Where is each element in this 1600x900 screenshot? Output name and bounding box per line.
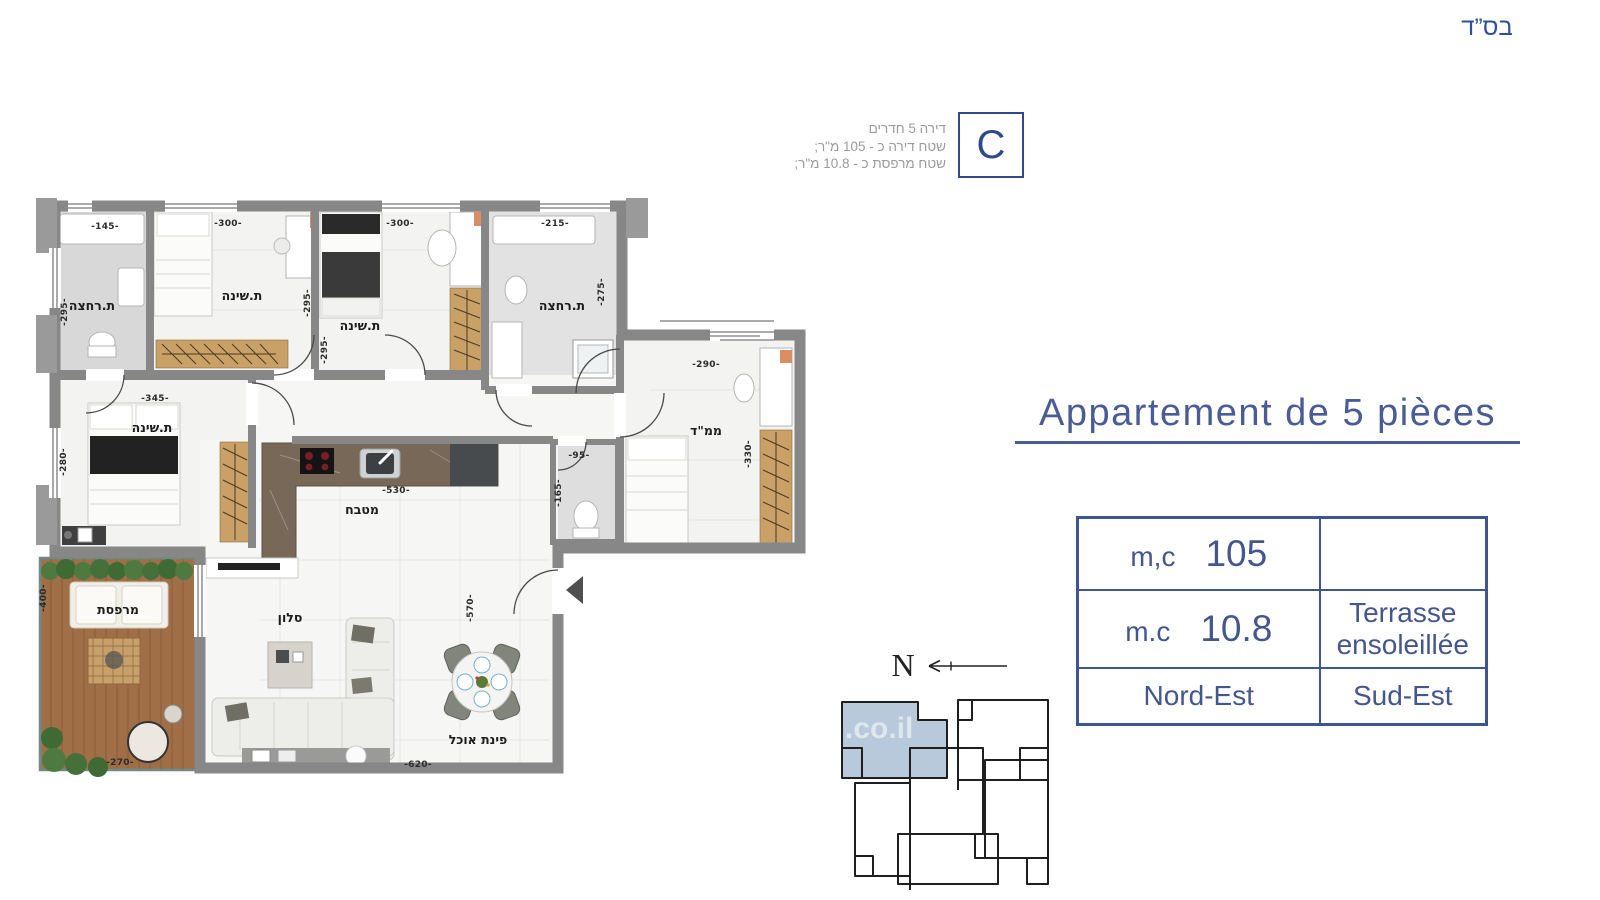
svg-text:-330-: -330- bbox=[744, 440, 754, 468]
svg-text:-295-: -295- bbox=[320, 336, 330, 364]
unit-letter: C bbox=[977, 123, 1006, 168]
svg-text:-400-: -400- bbox=[39, 584, 49, 612]
svg-text:-215-: -215- bbox=[541, 219, 569, 229]
room-label: מטבח bbox=[345, 502, 379, 517]
room-label: ת.רחצה bbox=[539, 298, 585, 313]
table-cell-terrace-desc: Terrasse ensoleillée bbox=[1321, 591, 1485, 669]
unit-annotation: דירה 5 חדרים שטח דירה כ - 105 מ"ר; שטח מ… bbox=[770, 112, 1024, 178]
area-value: 105 bbox=[1205, 533, 1267, 576]
fridge bbox=[450, 443, 498, 486]
unit-letter-box: C bbox=[958, 112, 1024, 178]
svg-text:-300-: -300- bbox=[214, 219, 242, 229]
sink-icon bbox=[360, 449, 400, 478]
room-label: ת.שינה bbox=[132, 420, 173, 435]
unit-desc-line: שטח מרפסת כ - 10.8 מ"ר; bbox=[770, 155, 946, 173]
dining-set bbox=[442, 642, 521, 721]
apartment-title: Appartement de 5 pièces bbox=[1015, 392, 1520, 444]
table-cell-orientation-2: Sud-Est bbox=[1321, 669, 1485, 723]
svg-text:-345-: -345- bbox=[141, 394, 169, 404]
table-cell-terrace-area: m.c 10.8 bbox=[1079, 591, 1321, 669]
svg-text:-145-: -145- bbox=[91, 222, 119, 232]
svg-text:-295-: -295- bbox=[60, 298, 70, 326]
stove-icon bbox=[300, 448, 334, 474]
svg-text:-280-: -280- bbox=[59, 448, 69, 476]
svg-text:-300-: -300- bbox=[386, 219, 414, 229]
unit-desc-line: דירה 5 חדרים bbox=[770, 120, 946, 138]
table-cell-orientation-1: Nord-Est bbox=[1079, 669, 1321, 723]
room-label: ת.שינה bbox=[222, 288, 263, 303]
room-label: פינת אוכל bbox=[449, 732, 508, 747]
area-label: m,c bbox=[1130, 541, 1175, 573]
table-cell-area: m,c 105 bbox=[1079, 519, 1321, 591]
building-footprint: .co.il bbox=[842, 700, 1048, 890]
svg-text:-620-: -620- bbox=[404, 760, 432, 770]
terrace-area-value: 10.8 bbox=[1200, 608, 1272, 651]
key-plan: N .co.il bbox=[815, 628, 1065, 890]
svg-text:-275-: -275- bbox=[597, 278, 607, 306]
room-label: ת.רחצה bbox=[69, 298, 115, 313]
svg-text:-570-: -570- bbox=[466, 594, 476, 622]
north-label: N bbox=[891, 647, 914, 683]
page: בס”ד דירה 5 חדרים שטח דירה כ - 105 מ"ר; … bbox=[0, 0, 1600, 900]
wc-fixtures bbox=[573, 501, 599, 538]
info-table: m,c 105 m.c 10.8 Terrasse ensoleillée No… bbox=[1076, 516, 1488, 726]
room-label: מרפסת bbox=[97, 602, 139, 617]
bsd-text: בס”ד bbox=[1452, 14, 1522, 42]
table-cell-empty bbox=[1321, 519, 1485, 591]
svg-text:-270-: -270- bbox=[106, 758, 134, 768]
north-indicator: N bbox=[891, 647, 1007, 683]
svg-text:-165-: -165- bbox=[554, 479, 564, 507]
unit-desc-line: שטח דירה כ - 105 מ"ר; bbox=[770, 138, 946, 156]
svg-text:-95-: -95- bbox=[568, 451, 589, 461]
watermark: .co.il bbox=[845, 712, 913, 745]
svg-text:-290-: -290- bbox=[692, 360, 720, 370]
terrace-sliding-door bbox=[194, 565, 206, 637]
room-label: ת.שינה bbox=[340, 318, 381, 333]
entrance-arrow-icon bbox=[566, 576, 583, 604]
room-label: ממ"ד bbox=[690, 423, 722, 438]
room-label: סלון bbox=[278, 610, 303, 625]
floor-plan: ת.רחצה ת.שינה ת.שינה ת.רחצה ת.שינה ממ"ד … bbox=[30, 190, 810, 790]
unit-description: דירה 5 חדרים שטח דירה כ - 105 מ"ר; שטח מ… bbox=[770, 112, 946, 173]
terrace-area-label: m.c bbox=[1125, 616, 1170, 648]
terrace-deck bbox=[40, 558, 198, 777]
svg-text:-530-: -530- bbox=[382, 486, 410, 496]
svg-text:-295-: -295- bbox=[303, 289, 313, 317]
